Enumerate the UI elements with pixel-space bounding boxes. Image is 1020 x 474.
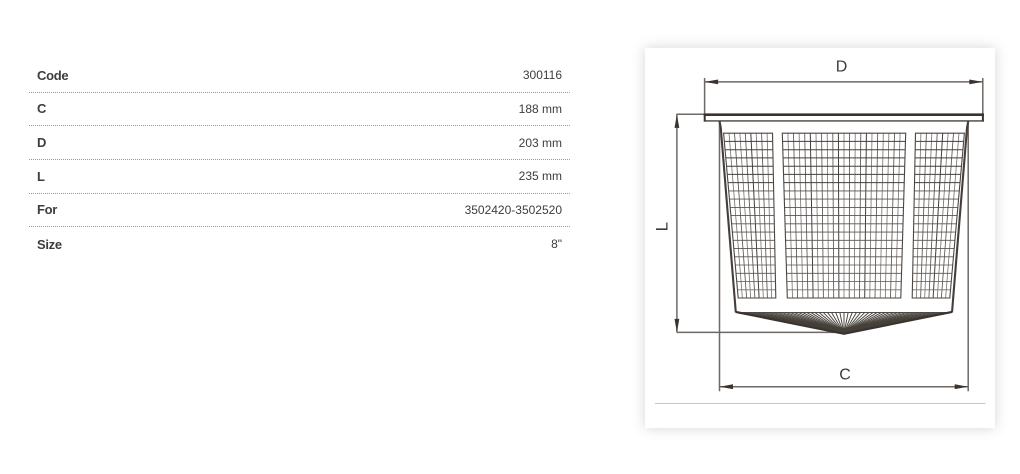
svg-text:L: L xyxy=(652,222,671,231)
svg-text:D: D xyxy=(836,58,848,75)
svg-text:C: C xyxy=(839,366,851,383)
